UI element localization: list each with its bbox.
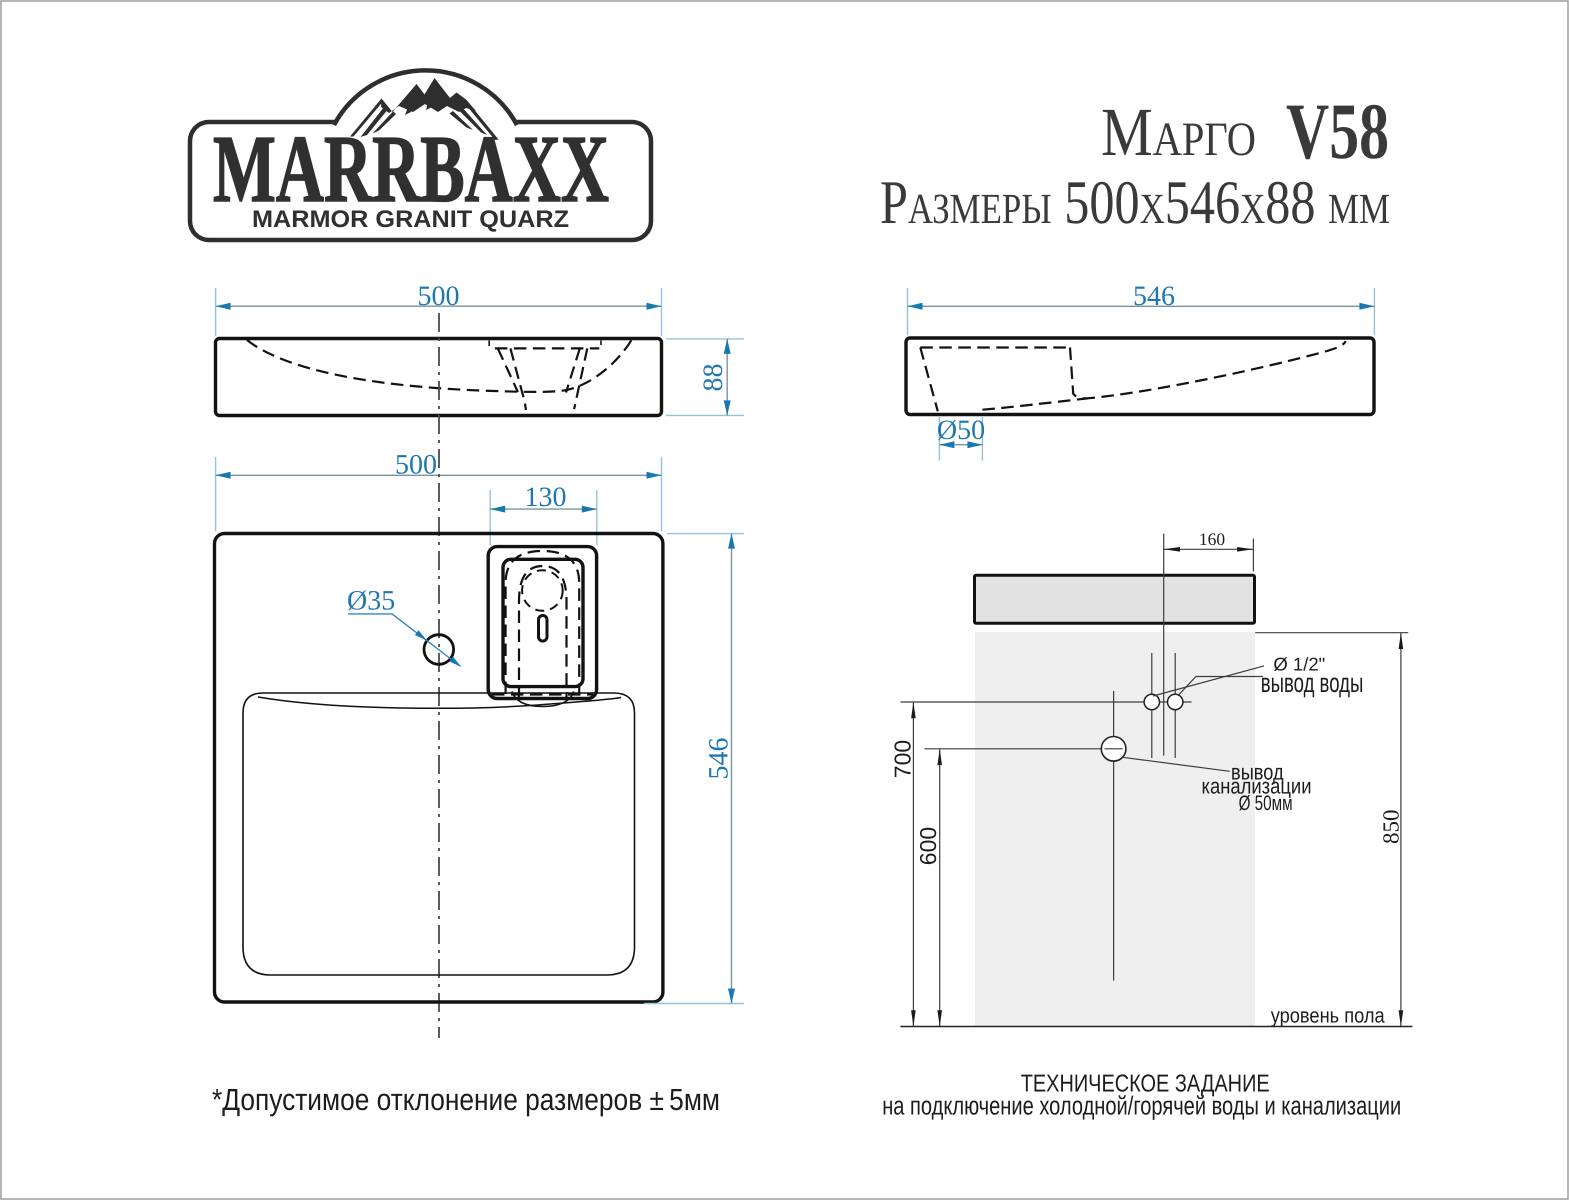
- svg-text:160: 160: [1199, 529, 1226, 549]
- svg-text:130: 130: [525, 482, 567, 513]
- svg-text:Ø50: Ø50: [937, 415, 985, 446]
- svg-text:*Допустимое отклонение размеро: *Допустимое отклонение размеров ± 5мм: [212, 1083, 720, 1117]
- svg-text:Ø35: Ø35: [347, 586, 395, 617]
- svg-text:вывод воды: вывод воды: [1261, 668, 1364, 698]
- svg-text:500: 500: [395, 450, 437, 481]
- svg-text:MARMOR GRANIT QUARZ: MARMOR GRANIT QUARZ: [252, 206, 569, 233]
- svg-text:V58: V58: [1286, 88, 1389, 176]
- svg-text:88: 88: [698, 364, 729, 392]
- svg-text:700: 700: [890, 740, 916, 778]
- svg-text:600: 600: [915, 827, 941, 865]
- svg-text:500: 500: [418, 281, 460, 312]
- svg-text:Ø 50мм: Ø 50мм: [1239, 792, 1293, 815]
- svg-text:на подключение холодной/горяче: на подключение холодной/горячей воды и к…: [882, 1090, 1401, 1120]
- svg-text:Марго: Марго: [1101, 94, 1256, 170]
- svg-text:546: 546: [704, 738, 735, 780]
- svg-text:850: 850: [1379, 809, 1404, 844]
- svg-text:уровень пола: уровень пола: [1271, 1005, 1385, 1028]
- svg-text:546: 546: [1133, 281, 1175, 312]
- svg-text:Размеры 500х546х88 мм: Размеры 500х546х88 мм: [880, 169, 1390, 237]
